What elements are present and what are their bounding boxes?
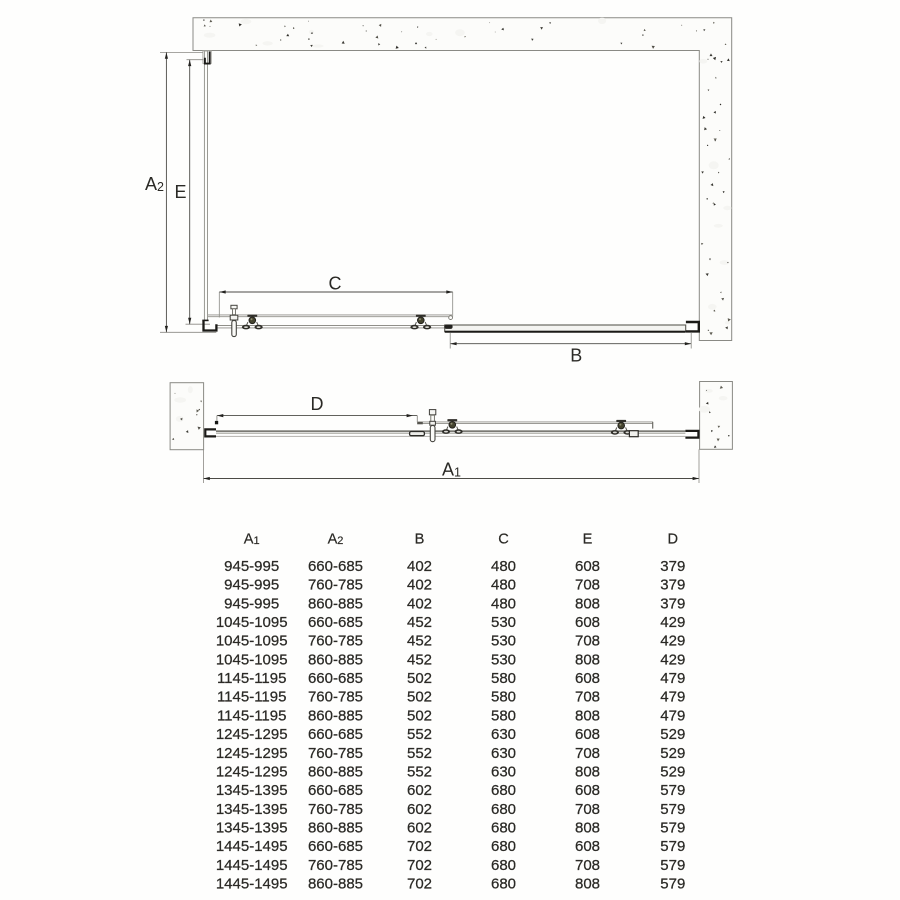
svg-text:860-885: 860-885 [308, 876, 363, 893]
svg-text:760-785: 760-785 [308, 633, 363, 650]
svg-text:429: 429 [660, 651, 685, 668]
svg-text:452: 452 [407, 651, 432, 668]
svg-text:E: E [583, 531, 593, 547]
svg-text:680: 680 [491, 838, 516, 855]
svg-text:760-785: 760-785 [308, 689, 363, 706]
svg-text:945-995: 945-995 [224, 577, 279, 594]
svg-text:552: 552 [407, 745, 432, 762]
svg-text:1045-1095: 1045-1095 [216, 633, 288, 650]
svg-text:1245-1295: 1245-1295 [216, 726, 288, 743]
svg-text:529: 529 [660, 745, 685, 762]
svg-text:702: 702 [407, 838, 432, 855]
svg-text:608: 608 [575, 670, 600, 687]
svg-text:530: 530 [491, 614, 516, 631]
svg-text:429: 429 [660, 633, 685, 650]
svg-text:452: 452 [407, 633, 432, 650]
svg-text:680: 680 [491, 820, 516, 837]
svg-text:708: 708 [575, 745, 600, 762]
svg-text:1045-1095: 1045-1095 [216, 614, 288, 631]
svg-text:660-685: 660-685 [308, 838, 363, 855]
svg-text:602: 602 [407, 782, 432, 799]
svg-text:680: 680 [491, 876, 516, 893]
svg-text:808: 808 [575, 595, 600, 612]
svg-text:708: 708 [575, 689, 600, 706]
svg-text:660-685: 660-685 [308, 614, 363, 631]
svg-text:1445-1495: 1445-1495 [216, 838, 288, 855]
svg-text:552: 552 [407, 726, 432, 743]
svg-text:1145-1195: 1145-1195 [217, 689, 287, 706]
svg-text:602: 602 [407, 801, 432, 818]
svg-text:1345-1395: 1345-1395 [216, 782, 288, 799]
svg-text:860-885: 860-885 [308, 820, 363, 837]
svg-text:860-885: 860-885 [308, 651, 363, 668]
svg-text:708: 708 [575, 577, 600, 594]
svg-text:D: D [668, 531, 679, 547]
svg-text:530: 530 [491, 633, 516, 650]
svg-text:402: 402 [407, 558, 432, 575]
svg-text:630: 630 [491, 726, 516, 743]
svg-text:680: 680 [491, 857, 516, 874]
svg-text:760-785: 760-785 [308, 577, 363, 594]
svg-text:480: 480 [491, 577, 516, 594]
svg-text:660-685: 660-685 [308, 670, 363, 687]
svg-text:B: B [415, 531, 425, 547]
svg-text:C: C [329, 274, 342, 294]
svg-text:808: 808 [575, 876, 600, 893]
svg-text:402: 402 [407, 577, 432, 594]
svg-text:1045-1095: 1045-1095 [216, 651, 288, 668]
svg-text:1345-1395: 1345-1395 [216, 801, 288, 818]
svg-text:1245-1295: 1245-1295 [216, 764, 288, 781]
svg-text:660-685: 660-685 [308, 558, 363, 575]
svg-text:945-995: 945-995 [224, 558, 279, 575]
svg-text:808: 808 [575, 651, 600, 668]
svg-text:B: B [570, 345, 582, 365]
svg-text:608: 608 [575, 614, 600, 631]
svg-text:579: 579 [660, 857, 685, 874]
svg-text:480: 480 [491, 558, 516, 575]
svg-text:660-685: 660-685 [308, 782, 363, 799]
svg-text:608: 608 [575, 726, 600, 743]
svg-text:608: 608 [575, 782, 600, 799]
svg-text:702: 702 [407, 876, 432, 893]
svg-text:479: 479 [660, 670, 685, 687]
svg-text:630: 630 [491, 745, 516, 762]
svg-text:608: 608 [575, 558, 600, 575]
svg-text:529: 529 [660, 764, 685, 781]
svg-text:680: 680 [491, 801, 516, 818]
svg-text:1345-1395: 1345-1395 [216, 820, 288, 837]
svg-text:1445-1495: 1445-1495 [216, 857, 288, 874]
svg-text:630: 630 [491, 764, 516, 781]
svg-text:379: 379 [660, 577, 685, 594]
svg-text:502: 502 [407, 670, 432, 687]
svg-text:D: D [311, 394, 324, 414]
svg-text:580: 580 [491, 670, 516, 687]
svg-text:479: 479 [660, 707, 685, 724]
svg-text:379: 379 [660, 558, 685, 575]
svg-text:580: 580 [491, 707, 516, 724]
svg-text:702: 702 [407, 857, 432, 874]
svg-text:708: 708 [575, 633, 600, 650]
svg-text:860-885: 860-885 [308, 764, 363, 781]
svg-text:479: 479 [660, 689, 685, 706]
svg-text:808: 808 [575, 820, 600, 837]
svg-text:945-995: 945-995 [224, 595, 279, 612]
svg-text:808: 808 [575, 707, 600, 724]
svg-text:608: 608 [575, 838, 600, 855]
svg-text:760-785: 760-785 [308, 857, 363, 874]
svg-text:E: E [174, 182, 186, 202]
svg-text:708: 708 [575, 801, 600, 818]
svg-text:C: C [498, 531, 509, 547]
svg-text:602: 602 [407, 820, 432, 837]
svg-text:708: 708 [575, 857, 600, 874]
svg-text:379: 379 [660, 595, 685, 612]
svg-text:680: 680 [491, 782, 516, 799]
svg-text:760-785: 760-785 [308, 801, 363, 818]
svg-text:552: 552 [407, 764, 432, 781]
svg-text:480: 480 [491, 595, 516, 612]
svg-text:579: 579 [660, 801, 685, 818]
svg-text:860-885: 860-885 [308, 595, 363, 612]
svg-text:1445-1495: 1445-1495 [216, 876, 288, 893]
svg-text:579: 579 [660, 838, 685, 855]
svg-text:579: 579 [660, 782, 685, 799]
svg-text:529: 529 [660, 726, 685, 743]
svg-text:580: 580 [491, 689, 516, 706]
svg-text:808: 808 [575, 764, 600, 781]
svg-text:660-685: 660-685 [308, 726, 363, 743]
svg-text:579: 579 [660, 820, 685, 837]
svg-text:1245-1295: 1245-1295 [216, 745, 288, 762]
svg-text:579: 579 [660, 876, 685, 893]
svg-text:502: 502 [407, 689, 432, 706]
svg-text:1145-1195: 1145-1195 [217, 707, 287, 724]
svg-text:402: 402 [407, 595, 432, 612]
svg-text:760-785: 760-785 [308, 745, 363, 762]
svg-text:1145-1195: 1145-1195 [217, 670, 287, 687]
svg-text:452: 452 [407, 614, 432, 631]
svg-text:860-885: 860-885 [308, 707, 363, 724]
svg-text:429: 429 [660, 614, 685, 631]
svg-text:502: 502 [407, 707, 432, 724]
svg-text:530: 530 [491, 651, 516, 668]
